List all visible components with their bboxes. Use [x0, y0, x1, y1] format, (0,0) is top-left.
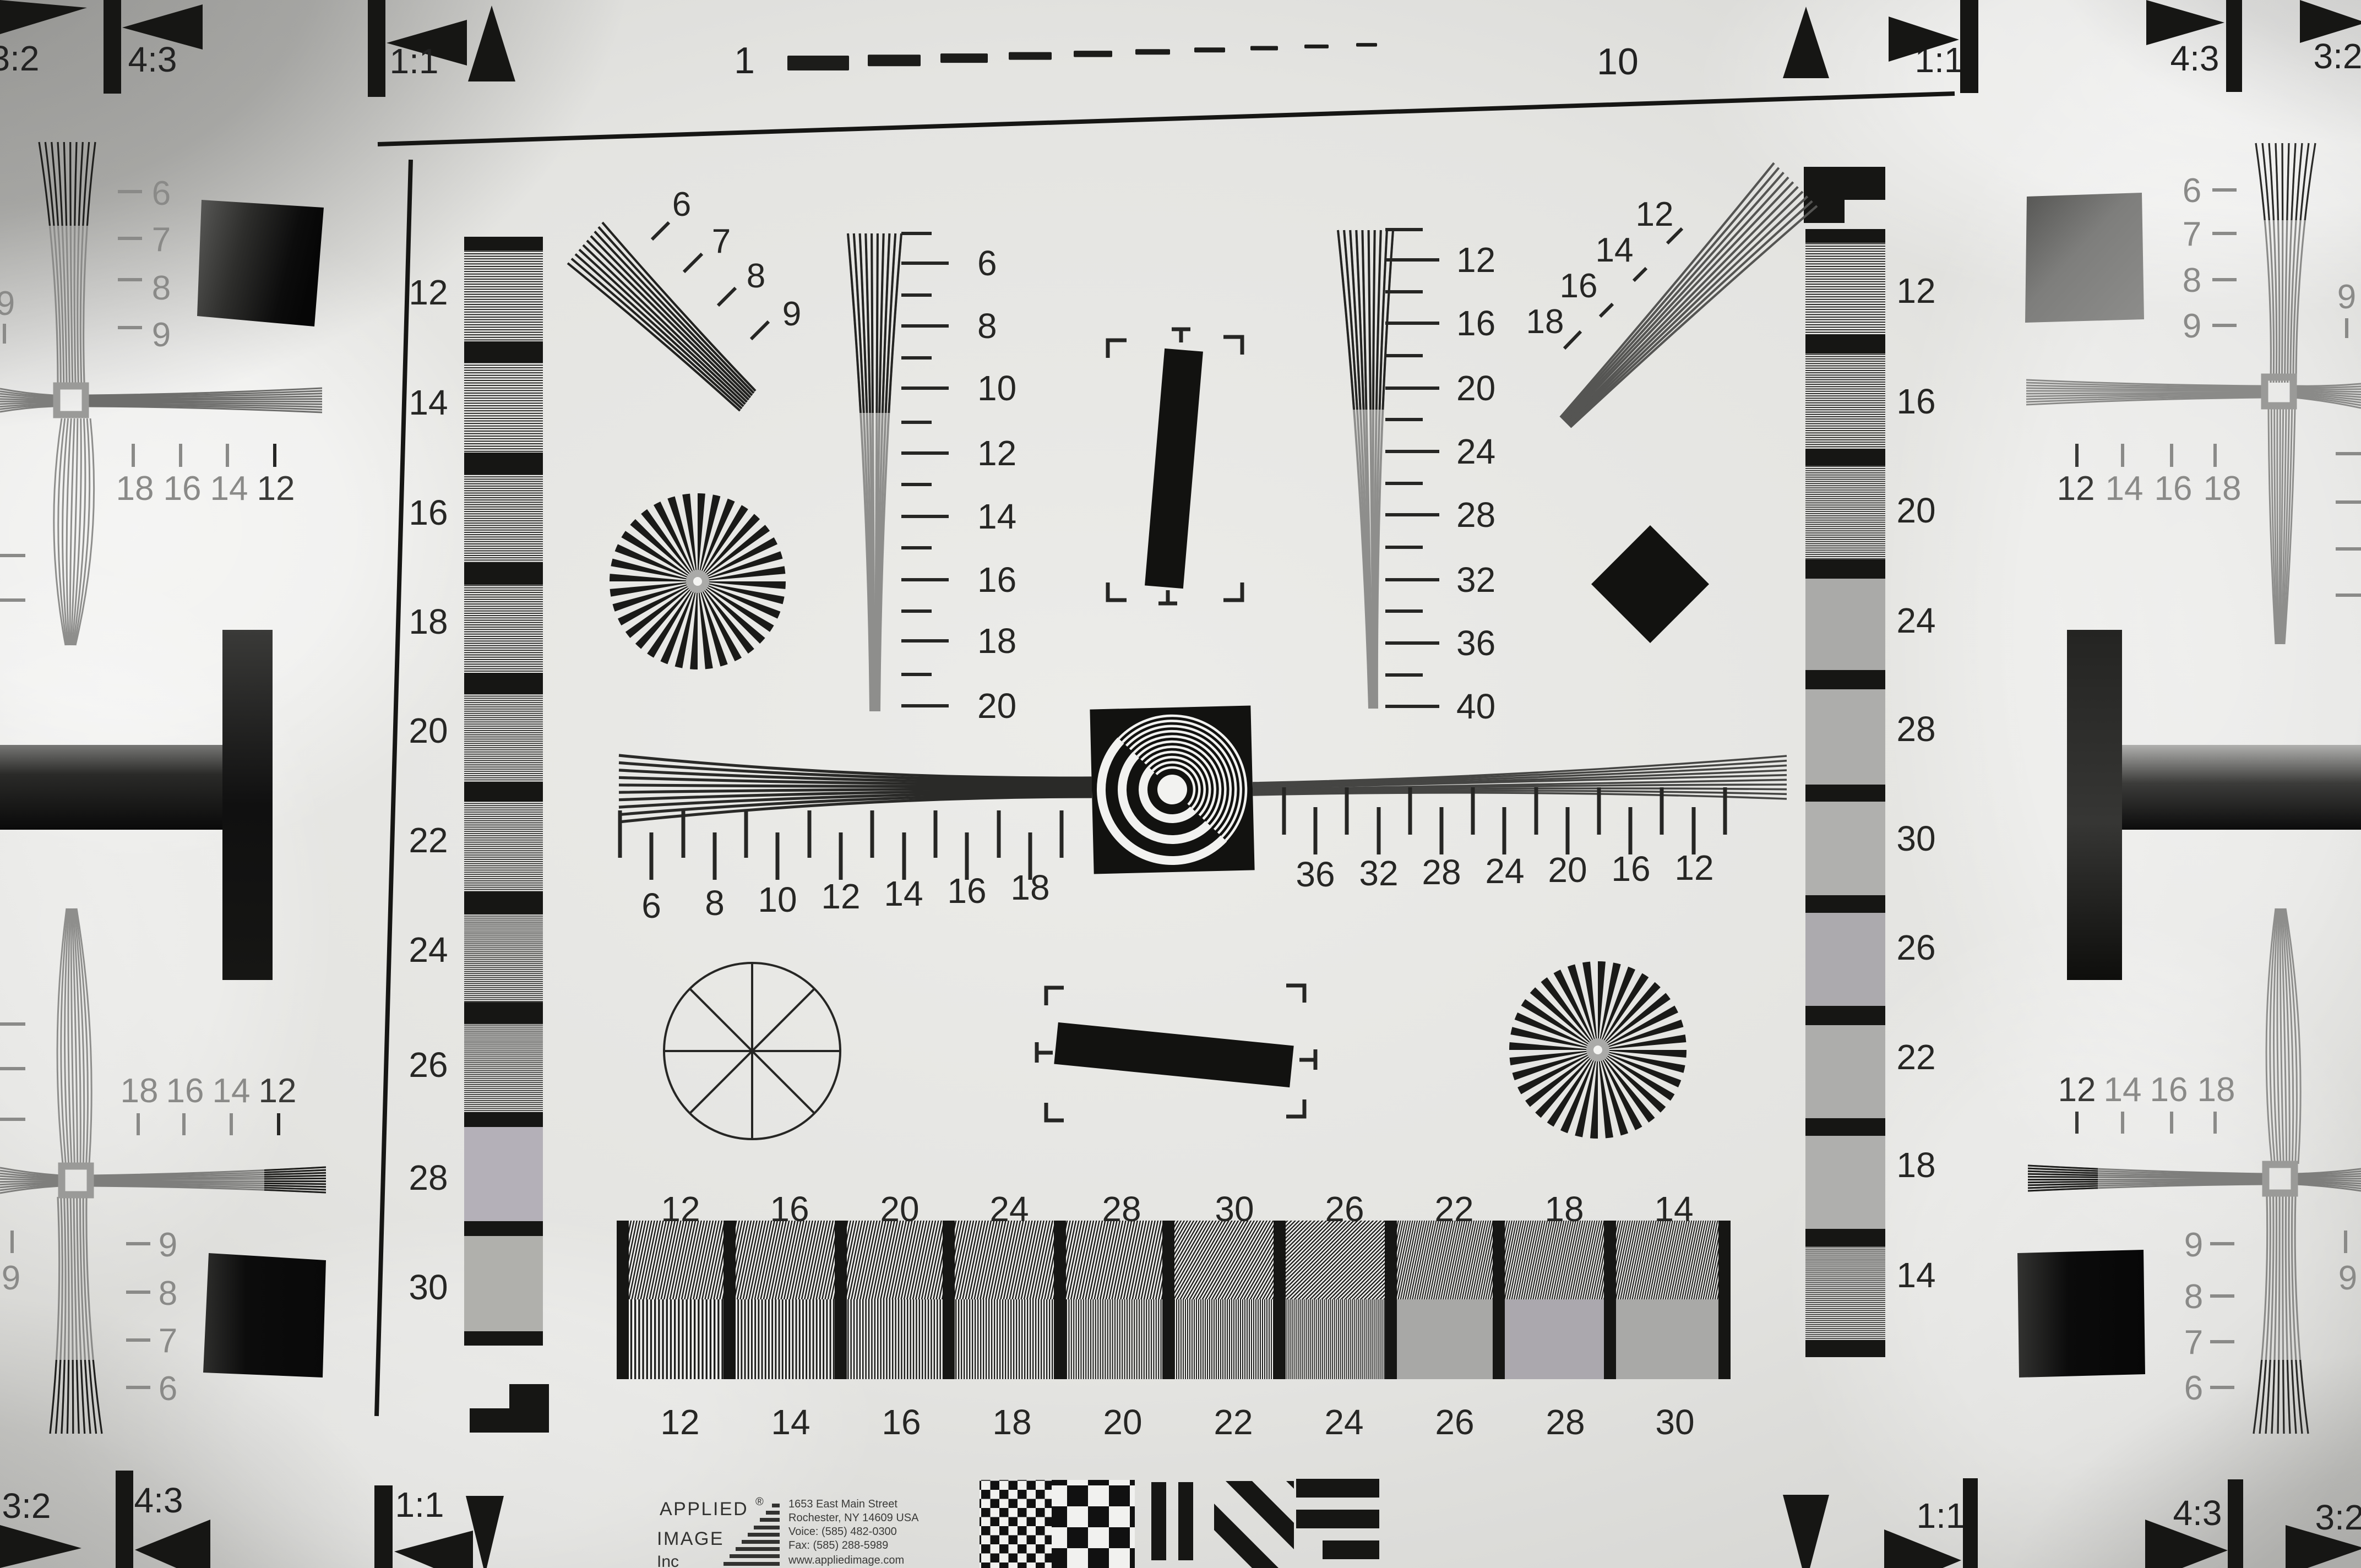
- svg-text:16: 16: [166, 1072, 204, 1110]
- svg-text:30: 30: [1896, 819, 1935, 858]
- svg-text:8: 8: [2184, 1278, 2203, 1316]
- svg-text:18: 18: [1010, 868, 1049, 907]
- svg-text:12: 12: [1456, 240, 1495, 280]
- svg-text:IMAGE: IMAGE: [657, 1528, 724, 1549]
- svg-text:8: 8: [152, 269, 171, 307]
- svg-text:26: 26: [409, 1045, 448, 1085]
- svg-text:28: 28: [1546, 1402, 1585, 1442]
- svg-text:20: 20: [409, 711, 448, 750]
- svg-text:Fax: (585) 288-5989: Fax: (585) 288-5989: [788, 1539, 888, 1551]
- svg-text:14: 14: [977, 497, 1016, 536]
- svg-text:16: 16: [770, 1189, 809, 1229]
- svg-text:12: 12: [2057, 470, 2095, 508]
- svg-text:16: 16: [882, 1402, 921, 1442]
- svg-text:22: 22: [1214, 1402, 1253, 1442]
- svg-text:18: 18: [2204, 470, 2242, 508]
- svg-text:www.appliedimage.com: www.appliedimage.com: [788, 1554, 904, 1566]
- svg-text:8: 8: [159, 1275, 177, 1313]
- svg-text:9: 9: [2183, 307, 2201, 345]
- svg-text:36: 36: [1296, 854, 1335, 894]
- svg-text:14: 14: [210, 470, 248, 508]
- svg-text:14: 14: [771, 1402, 810, 1442]
- svg-text:6: 6: [159, 1370, 177, 1408]
- svg-text:1:1: 1:1: [395, 1485, 444, 1525]
- svg-text:9: 9: [152, 316, 171, 354]
- svg-text:26: 26: [1896, 928, 1935, 967]
- svg-text:26: 26: [1435, 1402, 1474, 1442]
- svg-text:14: 14: [409, 383, 448, 422]
- svg-text:16: 16: [409, 493, 448, 532]
- svg-text:8: 8: [977, 306, 997, 346]
- svg-text:1653 East Main Street: 1653 East Main Street: [788, 1498, 897, 1510]
- svg-text:9: 9: [2, 1259, 20, 1297]
- svg-text:9: 9: [2338, 1259, 2357, 1297]
- svg-text:3:2: 3:2: [2, 1486, 51, 1526]
- svg-text:24: 24: [1896, 601, 1935, 640]
- svg-text:24: 24: [989, 1189, 1029, 1229]
- svg-text:18: 18: [116, 470, 154, 508]
- svg-text:20: 20: [1103, 1402, 1142, 1442]
- svg-text:7: 7: [2184, 1324, 2203, 1362]
- svg-text:12: 12: [1896, 271, 1935, 311]
- svg-text:9: 9: [2184, 1226, 2203, 1264]
- svg-text:16: 16: [1896, 382, 1935, 421]
- svg-text:Inc: Inc: [657, 1553, 679, 1568]
- svg-text:18: 18: [992, 1402, 1031, 1442]
- svg-text:12: 12: [661, 1189, 700, 1229]
- svg-text:12: 12: [1636, 195, 1674, 233]
- svg-text:26: 26: [1325, 1189, 1364, 1229]
- svg-text:APPLIED: APPLIED: [660, 1499, 748, 1520]
- svg-text:12: 12: [259, 1072, 297, 1110]
- svg-text:1: 1: [734, 40, 755, 81]
- svg-text:12: 12: [409, 273, 448, 312]
- svg-text:36: 36: [1456, 623, 1495, 663]
- svg-text:3:2: 3:2: [2315, 1498, 2361, 1537]
- svg-text:20: 20: [880, 1189, 919, 1229]
- svg-text:16: 16: [1456, 303, 1495, 343]
- svg-text:20: 20: [977, 686, 1016, 726]
- svg-text:9: 9: [0, 285, 15, 323]
- svg-text:16: 16: [1611, 849, 1650, 889]
- svg-text:10: 10: [1597, 41, 1639, 83]
- svg-text:18: 18: [1526, 303, 1564, 341]
- svg-text:28: 28: [409, 1158, 448, 1197]
- svg-text:20: 20: [1896, 491, 1935, 530]
- svg-text:16: 16: [2155, 470, 2193, 508]
- svg-text:4:3: 4:3: [128, 40, 177, 79]
- svg-text:4:3: 4:3: [134, 1480, 183, 1520]
- svg-text:16: 16: [947, 871, 986, 911]
- svg-text:28: 28: [1896, 709, 1935, 749]
- svg-text:8: 8: [705, 883, 725, 923]
- svg-text:16: 16: [1560, 267, 1598, 305]
- svg-text:9: 9: [782, 295, 801, 333]
- svg-text:14: 14: [1596, 231, 1634, 269]
- svg-text:14: 14: [884, 874, 923, 913]
- svg-text:6: 6: [641, 886, 661, 925]
- svg-text:9: 9: [159, 1226, 177, 1264]
- svg-text:20: 20: [1456, 368, 1495, 408]
- svg-text:14: 14: [2104, 1071, 2142, 1109]
- svg-text:30: 30: [1215, 1189, 1254, 1229]
- svg-text:10: 10: [977, 368, 1016, 408]
- svg-text:6: 6: [152, 175, 171, 213]
- svg-text:6: 6: [2184, 1369, 2203, 1407]
- svg-text:18: 18: [409, 602, 448, 641]
- svg-text:16: 16: [164, 470, 202, 508]
- svg-text:®: ®: [755, 1496, 764, 1508]
- svg-text:32: 32: [1456, 560, 1495, 600]
- svg-text:18: 18: [1544, 1189, 1584, 1229]
- svg-text:1:1: 1:1: [390, 41, 439, 81]
- svg-text:4:3: 4:3: [2173, 1493, 2222, 1533]
- svg-text:4:3: 4:3: [2170, 39, 2219, 78]
- svg-text:12: 12: [977, 433, 1016, 473]
- svg-text:14: 14: [1654, 1189, 1693, 1229]
- svg-text:14: 14: [1896, 1255, 1935, 1295]
- svg-text:10: 10: [758, 880, 797, 919]
- svg-text:8: 8: [747, 257, 765, 295]
- svg-text:3:2: 3:2: [0, 39, 39, 78]
- svg-text:3:2: 3:2: [2314, 36, 2361, 76]
- svg-text:7: 7: [152, 221, 171, 259]
- svg-text:24: 24: [1485, 851, 1524, 891]
- svg-text:12: 12: [1674, 848, 1713, 888]
- svg-text:24: 24: [1456, 432, 1495, 471]
- svg-text:14: 14: [213, 1072, 251, 1110]
- svg-text:22: 22: [1896, 1037, 1935, 1077]
- svg-text:28: 28: [1102, 1189, 1141, 1229]
- svg-text:Voice: (585) 482-0300: Voice: (585) 482-0300: [788, 1526, 897, 1538]
- svg-text:28: 28: [1456, 495, 1495, 535]
- svg-text:Rochester, NY 14609 USA: Rochester, NY 14609 USA: [788, 1512, 919, 1524]
- svg-text:32: 32: [1359, 853, 1398, 893]
- svg-text:6: 6: [2183, 172, 2201, 210]
- svg-text:6: 6: [977, 243, 997, 283]
- svg-text:20: 20: [1548, 850, 1587, 890]
- svg-text:6: 6: [672, 186, 691, 224]
- svg-text:18: 18: [2197, 1071, 2235, 1109]
- svg-text:18: 18: [977, 621, 1016, 661]
- svg-text:14: 14: [2106, 470, 2144, 508]
- svg-text:22: 22: [409, 820, 448, 860]
- svg-text:28: 28: [1422, 852, 1461, 892]
- svg-text:12: 12: [257, 470, 295, 508]
- svg-text:12: 12: [660, 1402, 699, 1442]
- svg-text:18: 18: [121, 1072, 159, 1110]
- svg-text:30: 30: [1655, 1402, 1694, 1442]
- svg-text:8: 8: [2183, 262, 2201, 300]
- svg-text:12: 12: [821, 876, 860, 916]
- svg-text:24: 24: [409, 930, 448, 970]
- svg-text:7: 7: [159, 1322, 177, 1360]
- svg-text:18: 18: [1896, 1145, 1935, 1185]
- svg-text:24: 24: [1324, 1402, 1363, 1442]
- svg-text:30: 30: [409, 1267, 448, 1307]
- svg-text:9: 9: [2337, 278, 2356, 316]
- svg-text:7: 7: [2183, 215, 2201, 253]
- svg-text:16: 16: [977, 560, 1016, 600]
- svg-text:22: 22: [1434, 1189, 1473, 1229]
- svg-text:16: 16: [2150, 1071, 2188, 1109]
- svg-text:12: 12: [2058, 1071, 2096, 1109]
- svg-text:1:1: 1:1: [1917, 1496, 1966, 1536]
- svg-text:40: 40: [1456, 687, 1495, 726]
- svg-text:7: 7: [712, 222, 731, 260]
